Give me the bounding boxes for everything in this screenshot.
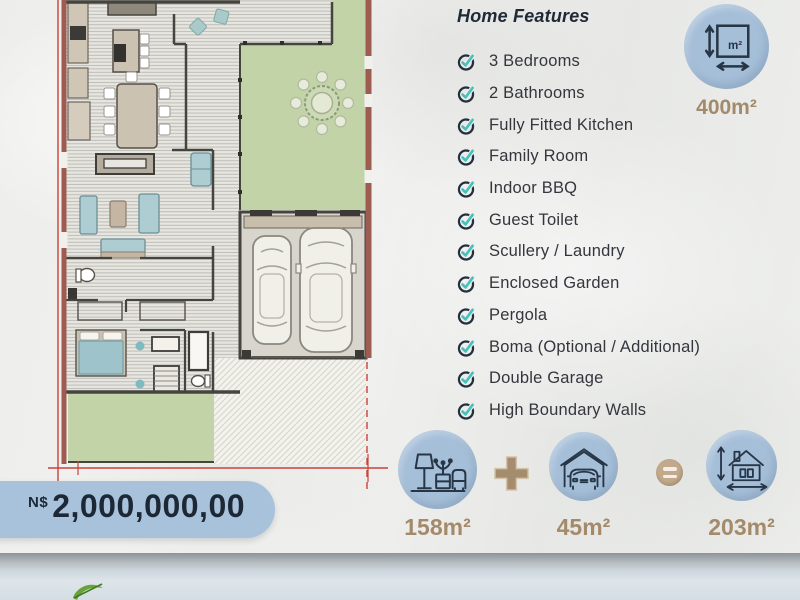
feature-label: Family Room — [489, 147, 588, 166]
check-icon — [457, 84, 476, 103]
furniture-icon — [407, 442, 469, 498]
feature-item: Pergola — [457, 300, 700, 332]
feature-label: Guest Toilet — [489, 211, 578, 230]
pergola-deck — [240, 0, 332, 44]
feature-label: 3 Bedrooms — [489, 52, 580, 71]
feature-item: Boma (Optional / Additional) — [457, 331, 700, 363]
enclosed-garden — [68, 392, 214, 462]
check-icon — [457, 306, 476, 325]
stand-size-value: 400m² — [684, 96, 769, 120]
feature-item: Scullery / Laundry — [457, 236, 700, 268]
check-icon — [457, 401, 476, 420]
car-small — [253, 236, 291, 344]
feature-item: Fully Fitted Kitchen — [457, 109, 700, 141]
feature-label: Fully Fitted Kitchen — [489, 116, 633, 135]
plot-measure-icon: m² — [698, 18, 756, 76]
feature-item: 2 Bathrooms — [457, 78, 700, 110]
check-icon — [457, 338, 476, 357]
feature-label: High Boundary Walls — [489, 401, 646, 420]
feature-list: 3 Bedrooms 2 Bathrooms Fully Fitted Kitc… — [457, 46, 700, 426]
feature-item: High Boundary Walls — [457, 395, 700, 427]
garage-area-badge — [549, 432, 618, 501]
check-icon — [457, 52, 476, 71]
m2-glyph: m² — [727, 38, 741, 51]
bathroom — [189, 332, 210, 387]
feature-label: 2 Bathrooms — [489, 84, 585, 103]
feature-label: Scullery / Laundry — [489, 242, 625, 261]
feature-label: Double Garage — [489, 369, 604, 388]
price-currency: N$ — [28, 494, 48, 511]
check-icon — [457, 116, 476, 135]
total-area-value: 203m² — [706, 514, 777, 541]
leaf-logo-fragment — [70, 581, 116, 600]
equals-icon: = — [656, 459, 683, 486]
total-area-badge — [706, 430, 777, 501]
stand-size-badge: m² — [684, 4, 769, 89]
car-large — [296, 228, 356, 352]
feature-label: Enclosed Garden — [489, 274, 620, 293]
page-title: Home Features — [457, 6, 590, 27]
feature-label: Indoor BBQ — [489, 179, 577, 198]
check-icon — [457, 147, 476, 166]
feature-item: Double Garage — [457, 363, 700, 395]
price-pill: N$ 2,000,000,00 — [0, 481, 275, 538]
price-amount: 2,000,000,00 — [52, 488, 245, 525]
driveway — [214, 358, 366, 464]
feature-item: Indoor BBQ — [457, 173, 700, 205]
flyer-canvas: Home Features 3 Bedrooms 2 Bathrooms Ful… — [0, 0, 800, 600]
boma — [291, 72, 354, 135]
living-area-value: 158m² — [398, 514, 477, 541]
house-dimensions-icon — [714, 440, 770, 492]
garage-car-icon — [557, 442, 611, 492]
stairs — [154, 366, 179, 392]
check-icon — [457, 211, 476, 230]
plus-icon: + — [494, 456, 529, 496]
living-area-badge — [398, 430, 477, 509]
feature-item: Family Room — [457, 141, 700, 173]
check-icon — [457, 369, 476, 388]
feature-label: Boma (Optional / Additional) — [489, 338, 700, 357]
feature-item: Enclosed Garden — [457, 268, 700, 300]
check-icon — [457, 274, 476, 293]
desk-surface — [0, 553, 800, 600]
check-icon — [457, 242, 476, 261]
feature-item: 3 Bedrooms — [457, 46, 700, 78]
garage-area-value: 45m² — [549, 514, 618, 541]
feature-label: Pergola — [489, 306, 547, 325]
double-garage — [240, 210, 366, 359]
floor-plan — [0, 0, 400, 500]
feature-item: Guest Toilet — [457, 204, 700, 236]
check-icon — [457, 179, 476, 198]
